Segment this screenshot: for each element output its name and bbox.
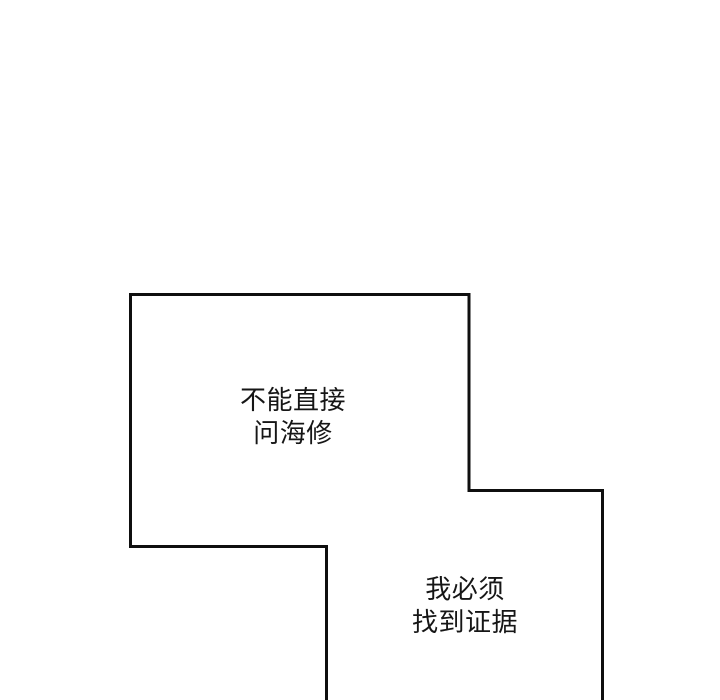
narration-box-1-line-2: 问海修 (183, 418, 403, 451)
narration-box-1-text: 不能直接 问海修 (183, 385, 403, 451)
narration-box-2-line-1: 我必须 (355, 574, 575, 607)
comic-panel: 不能直接 问海修 我必须 找到证据 (0, 0, 720, 700)
narration-box-1-line-1: 不能直接 (183, 385, 403, 418)
narration-box-2-line-2: 找到证据 (355, 607, 575, 640)
narration-box-2-text: 我必须 找到证据 (355, 574, 575, 640)
